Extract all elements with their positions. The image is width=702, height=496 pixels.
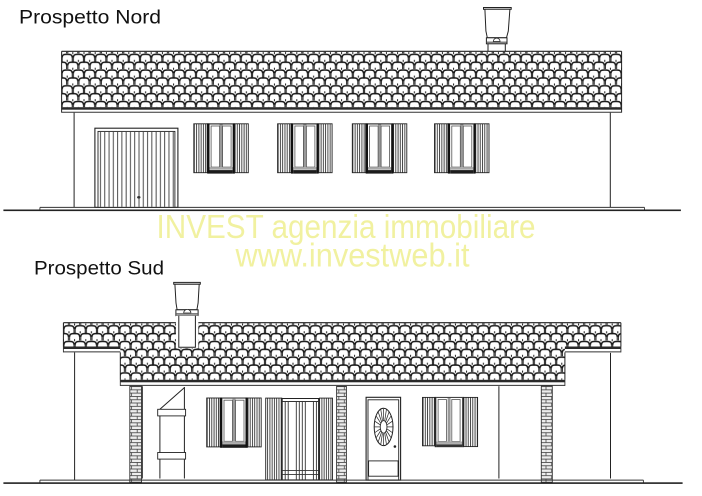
- svg-text:Prospetto Nord: Prospetto Nord: [19, 7, 161, 29]
- svg-text:www.investweb.it: www.investweb.it: [235, 238, 471, 275]
- svg-text:Prospetto Sud: Prospetto Sud: [34, 258, 164, 280]
